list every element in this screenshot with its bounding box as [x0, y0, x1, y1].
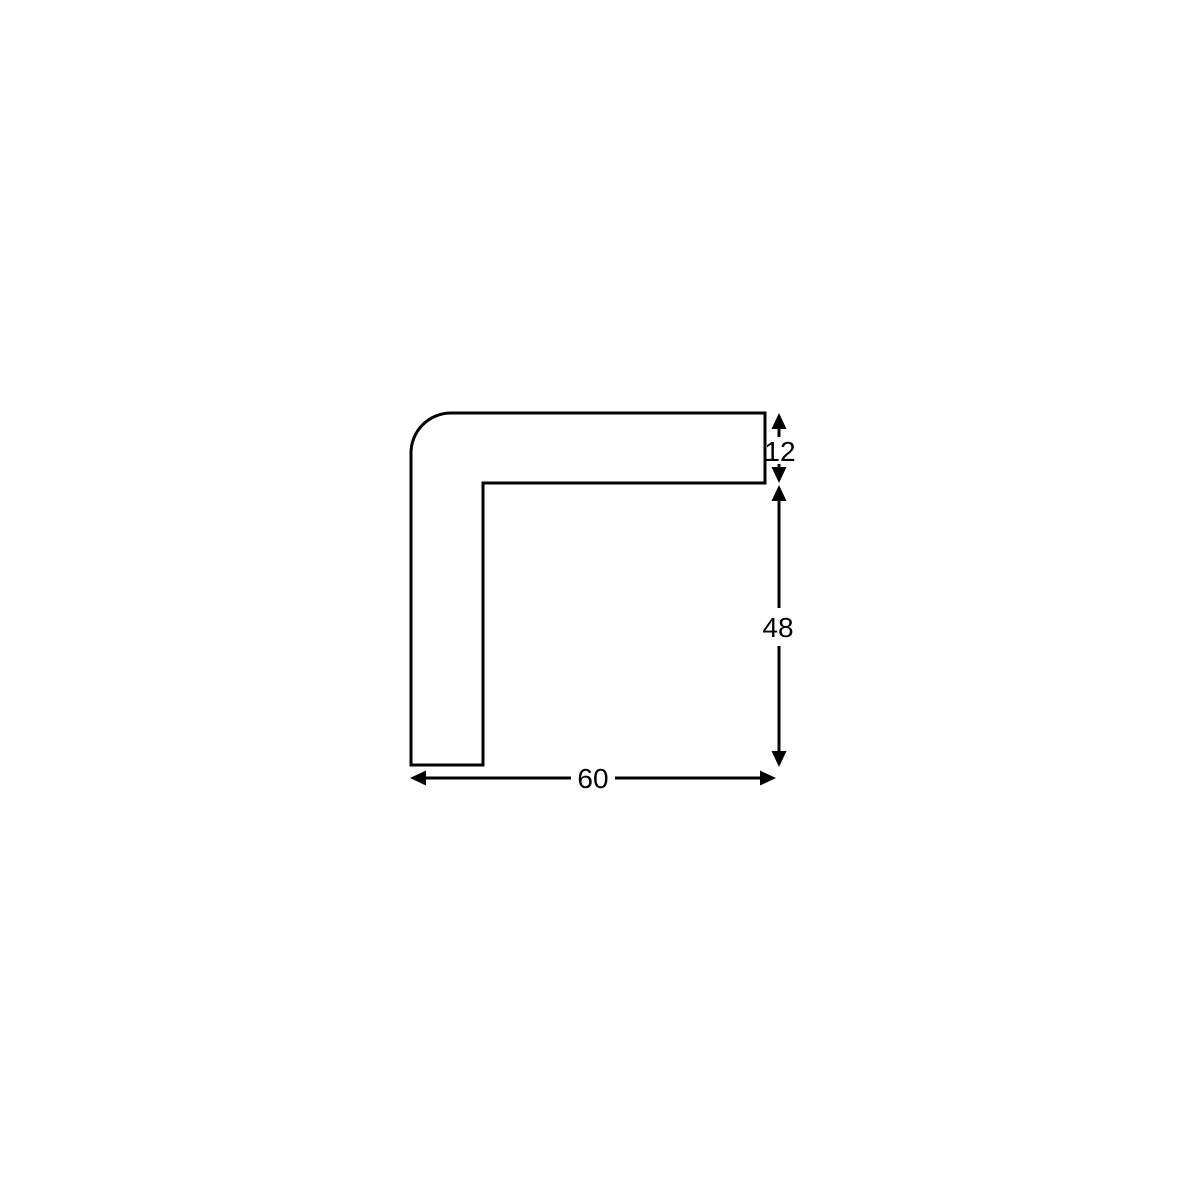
drawing-canvas: 12 48 60: [0, 0, 1200, 1200]
dimension-top-thickness: 12: [764, 413, 795, 483]
corner-profile-diagram: 12 48 60: [0, 0, 1200, 1200]
arrow-right-icon: [760, 771, 776, 786]
dimension-right-height: 48: [762, 485, 793, 767]
arrow-down-icon: [772, 751, 787, 767]
profile-outline: [411, 413, 765, 765]
dimension-label-60: 60: [577, 763, 608, 794]
dimension-label-48: 48: [762, 612, 793, 643]
arrow-down-icon: [772, 467, 787, 483]
dimension-label-12: 12: [764, 436, 795, 467]
dimension-bottom-width: 60: [410, 763, 776, 794]
